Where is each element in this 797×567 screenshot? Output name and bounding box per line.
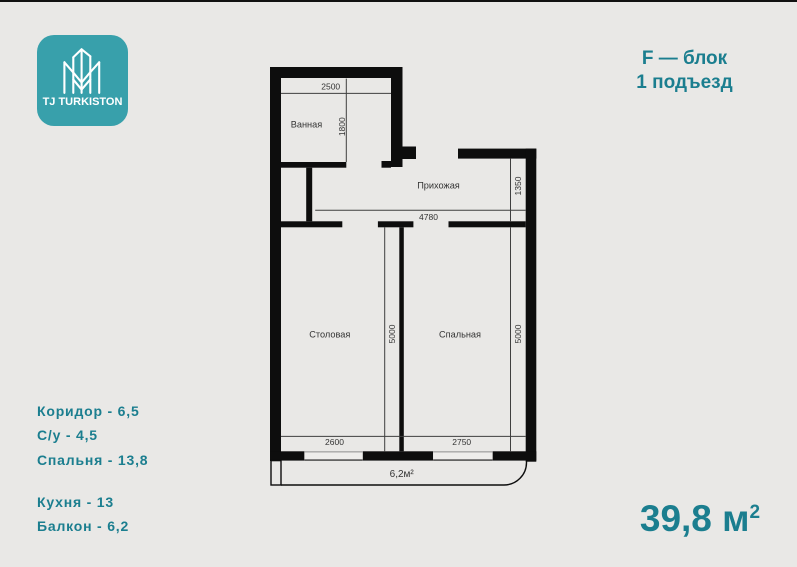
svg-text:5000: 5000: [387, 324, 397, 343]
svg-text:6,2м²: 6,2м²: [390, 469, 415, 480]
svg-text:1800: 1800: [337, 117, 347, 136]
svg-text:Спальная: Спальная: [439, 330, 481, 340]
svg-text:4780: 4780: [419, 212, 438, 222]
svg-text:Прихожая: Прихожая: [417, 180, 460, 190]
svg-text:Столовая: Столовая: [309, 330, 350, 340]
svg-text:2750: 2750: [452, 437, 471, 447]
svg-text:5000: 5000: [513, 324, 523, 343]
svg-text:2500: 2500: [321, 81, 340, 91]
svg-text:Ванная: Ванная: [291, 120, 322, 130]
svg-text:2600: 2600: [325, 437, 344, 447]
svg-text:1350: 1350: [513, 176, 523, 195]
